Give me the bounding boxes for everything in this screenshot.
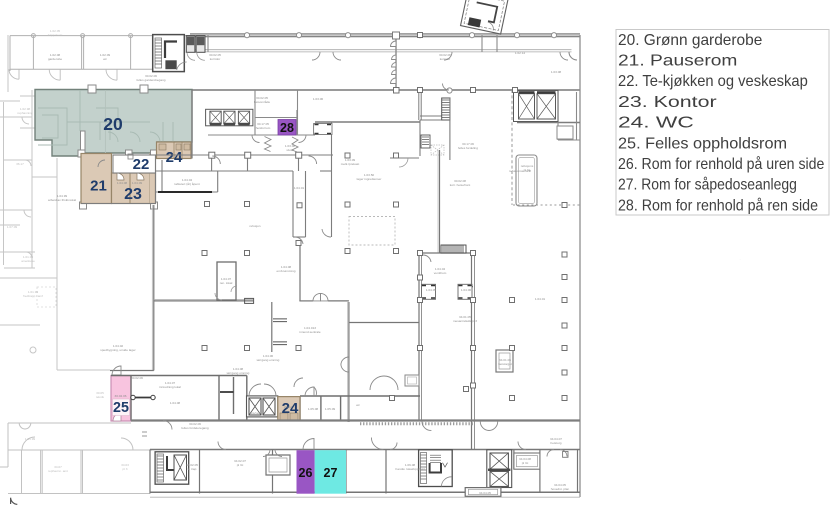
svg-text:korr. heisefront: korr. heisefront — [450, 183, 471, 187]
svg-text:pl 3: pl 3 — [123, 467, 128, 471]
svg-text:handw. lokal/opphold: handw. lokal/opphold — [396, 467, 425, 471]
svg-text:melk./prekast: melk./prekast — [341, 162, 360, 166]
svg-text:21: 21 — [90, 178, 107, 195]
svg-text:ren. lokal: ren. lokal — [220, 281, 233, 285]
svg-text:sluse: sluse — [286, 148, 294, 152]
svg-text:rephavnn. amt: rephavnn. amt — [48, 469, 68, 473]
svg-text:emb.tømming: emb.tømming — [277, 269, 296, 273]
svg-text:24. WC: 24. WC — [618, 114, 694, 132]
svg-text:27: 27 — [324, 466, 338, 480]
svg-text:heistorg: heistorg — [550, 441, 561, 445]
svg-text:heistorget: heistorget — [498, 362, 512, 366]
svg-text:23. Kontor: 23. Kontor — [618, 93, 717, 111]
svg-text:36.17: 36.17 — [16, 162, 24, 166]
svg-text:30.02.06: 30.02.06 — [131, 376, 143, 380]
svg-text:korridor: korridor — [440, 57, 451, 61]
svg-text:tr. trap: tr. trap — [188, 467, 197, 471]
svg-text:felles fordeleregang: felles fordeleregang — [181, 426, 208, 430]
svg-text:pl 3c: pl 3c — [237, 463, 244, 467]
svg-text:34.04.05: 34.04.05 — [479, 491, 491, 495]
svg-text:refusjon: refusjon — [249, 224, 260, 228]
svg-text:felles garderobegang: felles garderobegang — [136, 78, 165, 82]
svg-text:24: 24 — [166, 149, 183, 166]
svg-text:innredning lokal: innredning lokal — [159, 385, 181, 389]
svg-text:30.02.06: 30.02.06 — [114, 394, 126, 398]
svg-text:25. Felles oppholdsrom: 25. Felles oppholdsrom — [618, 134, 787, 152]
svg-text:lager ingredienser: lager ingredienser — [357, 177, 382, 181]
svg-text:tableteri (år) åpent: tableteri (år) åpent — [174, 182, 199, 186]
svg-text:1.02.14: 1.02.14 — [515, 51, 526, 55]
svg-text:25: 25 — [113, 400, 129, 416]
svg-text:ametkube: ametkube — [21, 259, 35, 263]
svg-text:mesanindekk pl 3: mesanindekk pl 3 — [453, 319, 477, 323]
svg-text:trappekum: trappekum — [48, 33, 63, 37]
svg-text:1.04.01: 1.04.01 — [294, 186, 305, 190]
svg-text:1.05.99: 1.05.99 — [25, 437, 36, 441]
svg-text:tørrgang omning: tørrgang omning — [227, 371, 250, 375]
svg-text:1.04.06: 1.04.06 — [461, 288, 472, 292]
svg-text:heisforrom: heisforrom — [256, 126, 271, 130]
svg-text:1.03.08: 1.03.08 — [551, 70, 562, 74]
svg-text:1.05.08: 1.05.08 — [308, 407, 319, 411]
svg-text:24.02: 24.02 — [284, 405, 292, 409]
svg-text:1.07.09: 1.07.09 — [7, 225, 18, 229]
svg-text:23: 23 — [124, 186, 142, 203]
svg-text:26: 26 — [299, 466, 313, 480]
svg-text:fredtrapp i amf: fredtrapp i amf — [23, 294, 43, 298]
svg-text:hovedst. plan: hovedst. plan — [551, 487, 570, 491]
svg-text:1.04.08: 1.04.08 — [170, 401, 181, 405]
svg-text:arbeid av fristik.lokal: arbeid av fristik.lokal — [48, 198, 76, 202]
svg-text:22: 22 — [133, 156, 150, 173]
svg-text:20: 20 — [103, 114, 123, 134]
svg-text:rephavning: rephavning — [17, 111, 33, 115]
svg-text:28. Rom for renhold på ren sid: 28. Rom for renhold på ren side — [618, 197, 818, 215]
svg-text:26. Rom for renhold på uren si: 26. Rom for renhold på uren side — [618, 155, 824, 173]
svg-text:1.03.06: 1.03.06 — [313, 97, 324, 101]
svg-text:wc: wc — [356, 403, 360, 407]
svg-text:.: . — [740, 257, 741, 261]
svg-text:innend.sentrale: innend.sentrale — [299, 330, 320, 334]
svg-text:1.04.08: 1.04.08 — [117, 181, 128, 185]
svg-text:heisområde: heisområde — [254, 100, 270, 104]
svg-text:1.04.01: 1.04.01 — [535, 297, 546, 301]
svg-text:pl 3c: pl 3c — [522, 461, 529, 465]
svg-text:1.05.09: 1.05.09 — [325, 407, 336, 411]
svg-text:korridor: korridor — [210, 57, 221, 61]
svg-text:felles fordeling: felles fordeling — [458, 146, 478, 150]
svg-text:1.04.09: 1.04.09 — [132, 181, 143, 185]
svg-text:pl 3a: pl 3a — [524, 168, 531, 172]
svg-text:27. Rom for såpedoseanlegg: 27. Rom for såpedoseanlegg — [618, 176, 797, 194]
svg-text:heis/vent: heis/vent — [249, 411, 262, 415]
svg-text:21. Pauserom: 21. Pauserom — [618, 51, 737, 69]
svg-text:teknik: teknik — [96, 395, 105, 399]
svg-text:22. Te-kjøkken og veskeskap: 22. Te-kjøkken og veskeskap — [618, 73, 808, 91]
svg-text:28: 28 — [280, 121, 294, 135]
svg-text:1.04.05: 1.04.05 — [426, 288, 437, 292]
svg-text:garderobe: garderobe — [48, 57, 62, 61]
svg-text:wc: wc — [103, 57, 107, 61]
svg-text:ventilrom: ventilrom — [434, 271, 447, 275]
svg-text:20. Grønn garderobe: 20. Grønn garderobe — [618, 32, 762, 49]
svg-text:spedbygning, urside lager: spedbygning, urside lager — [100, 348, 135, 352]
svg-text:tørrgang emning: tørrgang emning — [257, 358, 280, 362]
